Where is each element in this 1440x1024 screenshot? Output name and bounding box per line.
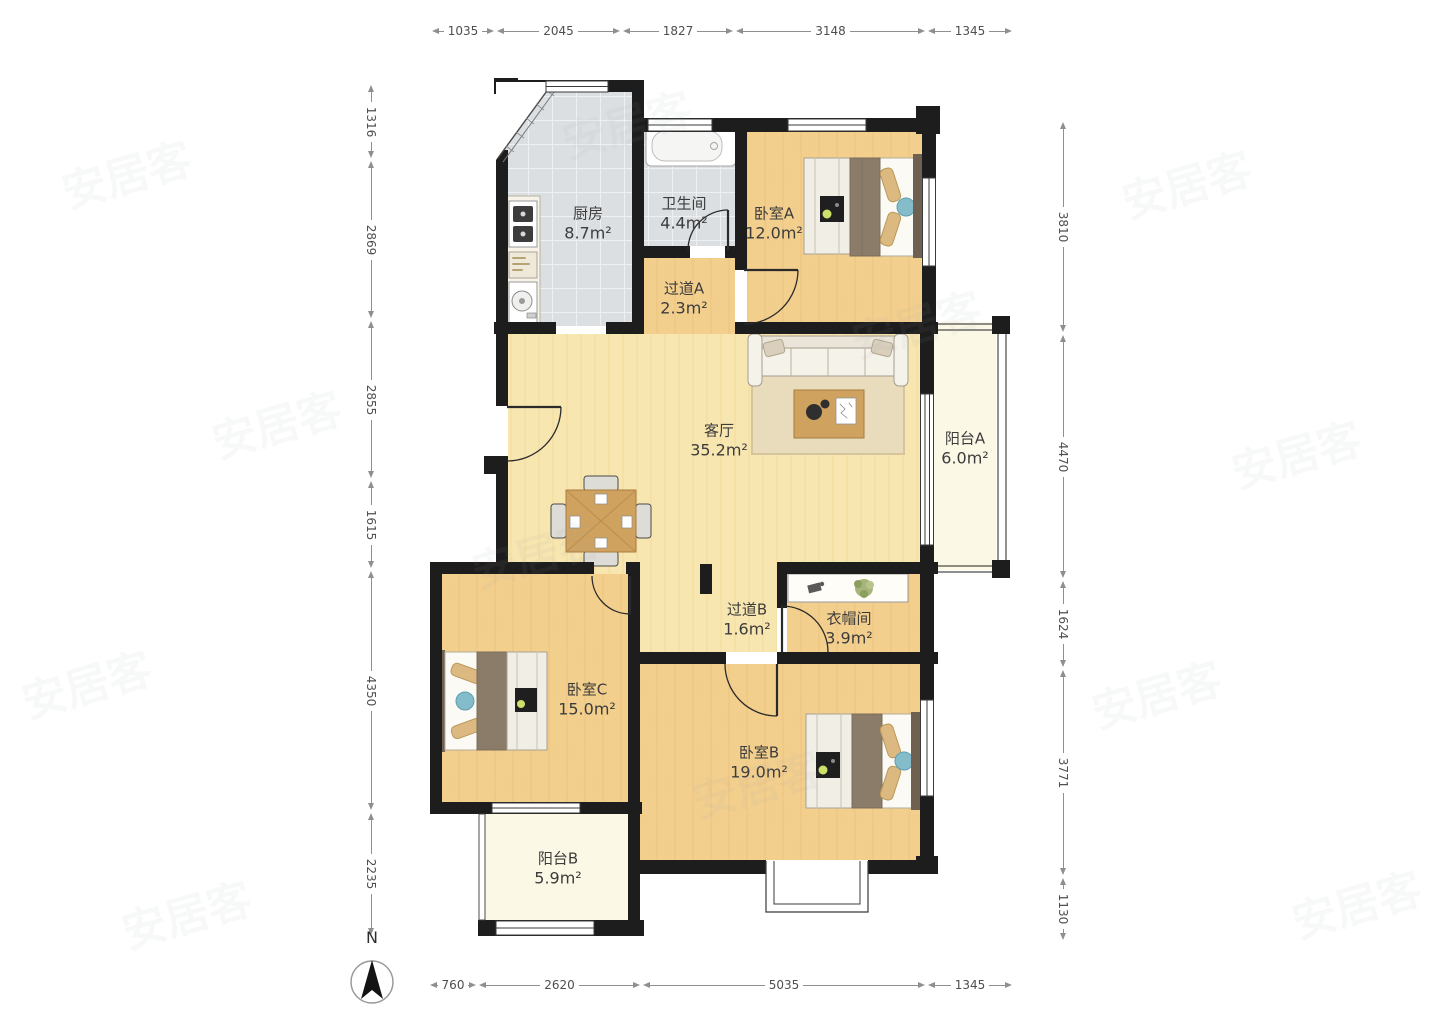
dim-right-3: 1624 [1055,581,1071,667]
dim-left-2: 2869 [363,161,379,318]
cloakroom-shelf [788,574,908,602]
dim-right-4: 3771 [1055,670,1071,875]
bedroom-c-furniture [436,650,547,752]
balcony-a-floor [932,322,996,570]
dim-bottom-1: 760 [430,977,476,993]
dim-bottom-3: 5035 [643,977,925,993]
balcony-b-floor [485,814,628,920]
dim-top-3: 1827 [623,23,733,39]
dining-set [551,476,651,566]
dim-left-5: 4350 [363,571,379,810]
kitchen-counter [506,196,540,328]
dim-left-1: 1316 [363,85,379,158]
dim-top-5: 1345 [928,23,1012,39]
dim-right-5: 1130 [1055,878,1071,940]
living-room-furniture [748,334,908,454]
bedroom-b-furniture [806,712,920,810]
dim-left-6: 2235 [363,813,379,935]
dim-left-3: 2855 [363,321,379,478]
bay-window [766,861,868,912]
dim-right-2: 4470 [1055,335,1071,578]
compass-north-label: N [358,928,386,947]
dim-bottom-4: 1345 [928,977,1012,993]
bedroom-a-furniture [804,154,922,258]
dim-right-1: 3810 [1055,122,1071,332]
compass [351,960,393,1003]
hallway-a-floor [644,258,735,334]
dim-left-4: 1615 [363,481,379,568]
floorplan-page: { "watermark": "安居客", "compass": { "labe… [0,0,1440,1024]
dim-top-1: 1035 [432,23,494,39]
floorplan-drawing [0,0,1440,1024]
dim-bottom-2: 2620 [479,977,640,993]
dim-top-4: 3148 [736,23,925,39]
dim-top-2: 2045 [497,23,620,39]
